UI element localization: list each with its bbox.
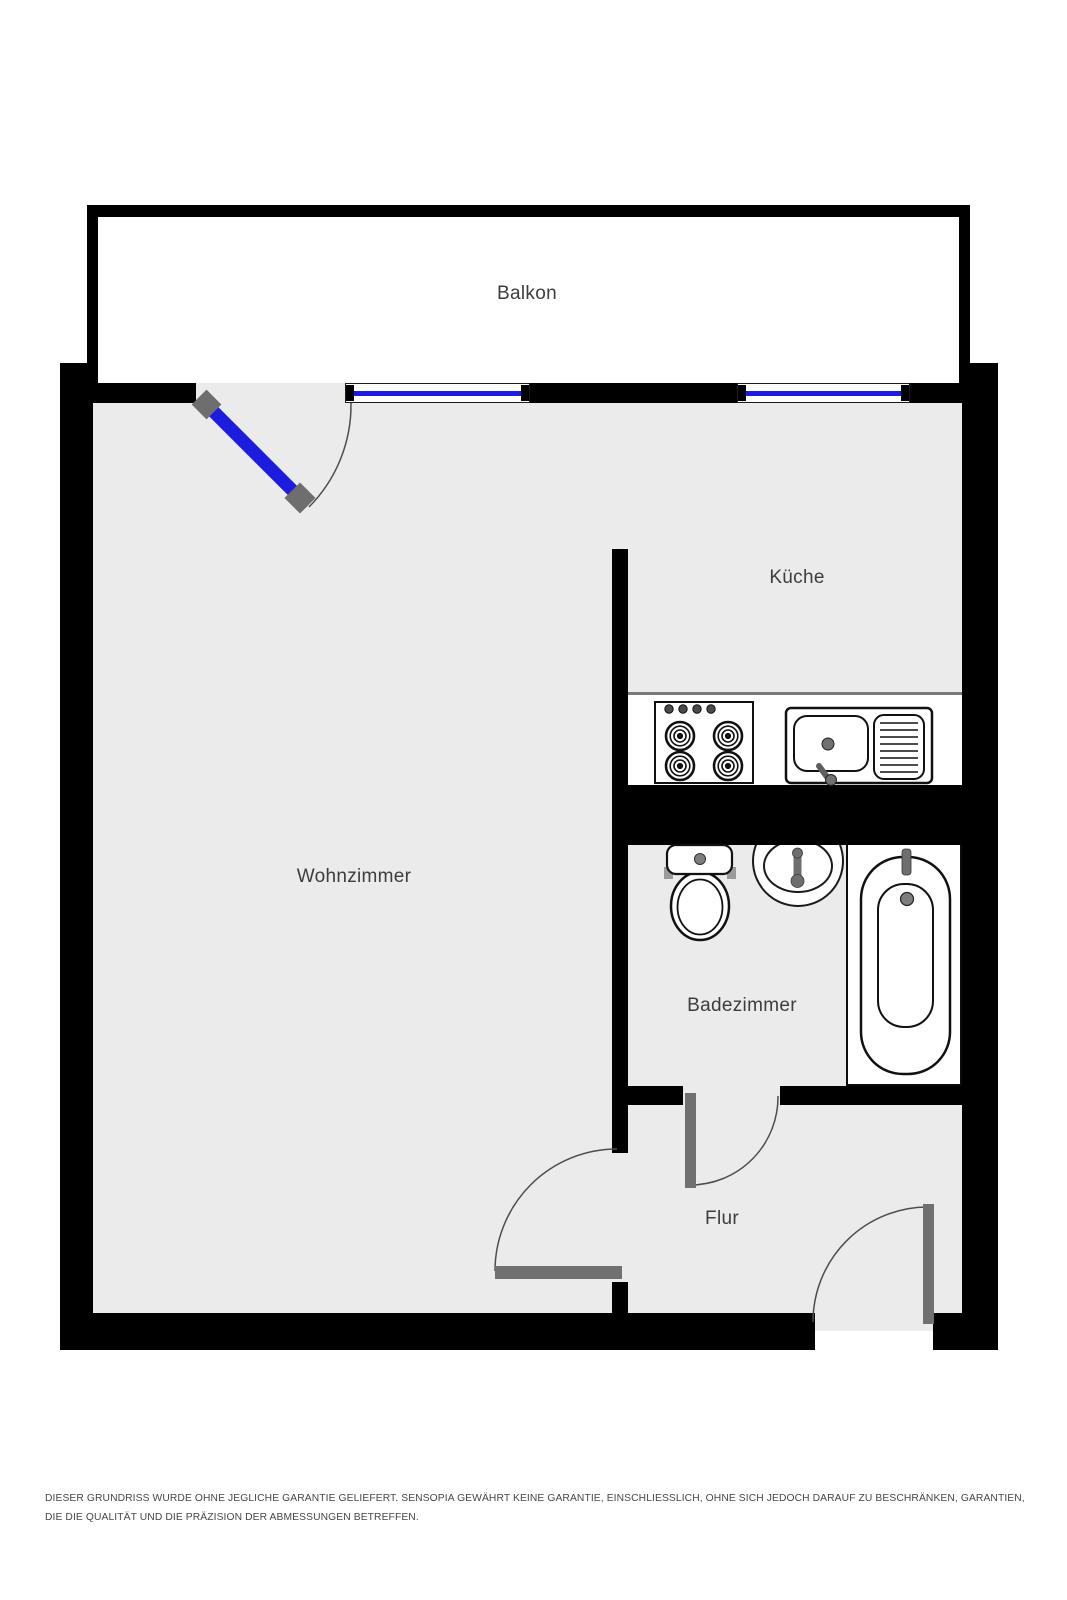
balcony-door [192,390,351,514]
disclaimer-text: DIESER GRUNDRISS WURDE OHNE JEGLICHE GAR… [45,1489,1025,1527]
room-label-wohnzimmer: Wohnzimmer [297,866,412,888]
room-label-flur: Flur [705,1208,739,1230]
bathroom-door [685,1093,778,1188]
room-label-kueche: Küche [769,567,824,589]
bathtub-icon [861,849,950,1074]
washbasin-faucet-icon [791,848,804,888]
kitchen-sink-icon [786,708,932,786]
stove-icon [655,702,753,783]
living-room-door [495,1149,622,1279]
entrance-door [813,1204,934,1324]
floorplan-canvas: Balkon Wohnzimmer Küche Badezimmer Flur … [0,0,1067,1600]
fixtures-layer [0,0,1067,1600]
room-label-balkon: Balkon [497,283,557,305]
room-label-badezimmer: Badezimmer [687,995,797,1017]
toilet-icon [664,845,736,940]
